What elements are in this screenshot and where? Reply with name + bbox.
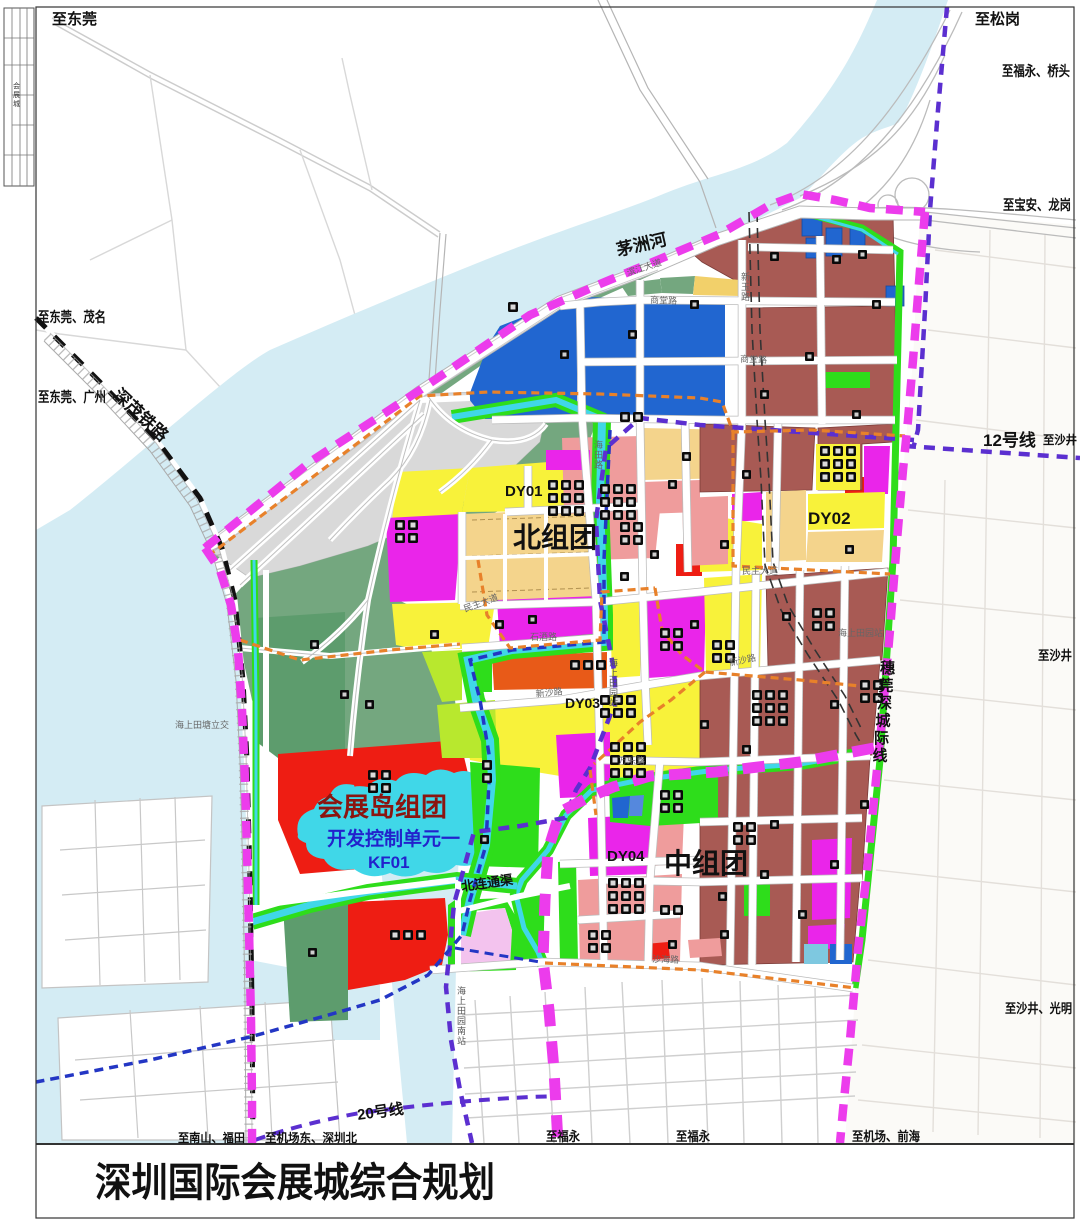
svg-text:至东莞、广州: 至东莞、广州 <box>38 389 106 405</box>
svg-text:城: 城 <box>876 712 891 730</box>
svg-text:至沙井: 至沙井 <box>1038 648 1072 663</box>
svg-text:DY03: DY03 <box>565 695 600 711</box>
svg-text:北组团: 北组团 <box>513 522 597 553</box>
svg-text:中组团: 中组团 <box>664 848 748 879</box>
svg-text:DY04: DY04 <box>607 848 645 865</box>
svg-text:穗: 穗 <box>880 659 895 677</box>
svg-text:至松岗: 至松岗 <box>975 10 1020 28</box>
svg-text:海上田园站: 海上田园站 <box>838 627 883 638</box>
svg-text:12号线: 12号线 <box>983 430 1036 450</box>
svg-text:至东莞: 至东莞 <box>52 10 97 28</box>
svg-text:站: 站 <box>609 697 618 708</box>
svg-text:DY01: DY01 <box>505 483 543 500</box>
svg-text:至沙井、光明: 至沙井、光明 <box>1005 1001 1072 1016</box>
svg-text:至机场东、深圳北: 至机场东、深圳北 <box>265 1130 357 1145</box>
svg-text:田: 田 <box>594 450 603 460</box>
svg-text:上: 上 <box>609 668 618 678</box>
svg-text:会: 会 <box>13 81 20 90</box>
svg-text:田: 田 <box>609 678 618 688</box>
svg-text:KF01: KF01 <box>368 853 410 872</box>
svg-text:新: 新 <box>741 271 750 282</box>
svg-text:线: 线 <box>873 747 888 765</box>
svg-text:至宝安、龙岗: 至宝安、龙岗 <box>1003 197 1071 213</box>
svg-text:南: 南 <box>457 1025 466 1036</box>
svg-text:莞: 莞 <box>879 677 894 695</box>
svg-text:石酒路: 石酒路 <box>530 631 557 642</box>
svg-text:深圳国际会展城综合规划: 深圳国际会展城综合规划 <box>95 1161 495 1205</box>
svg-text:至东莞、茂名: 至东莞、茂名 <box>38 309 106 325</box>
svg-text:路: 路 <box>594 459 603 470</box>
svg-text:海: 海 <box>457 985 466 996</box>
svg-text:深: 深 <box>877 694 892 712</box>
svg-text:DY02: DY02 <box>808 509 851 528</box>
svg-text:海: 海 <box>594 439 603 450</box>
svg-text:至福永、桥头: 至福永、桥头 <box>1002 63 1070 79</box>
svg-text:站: 站 <box>457 1035 466 1046</box>
svg-text:至南山、福田: 至南山、福田 <box>178 1130 245 1145</box>
svg-text:至福永: 至福永 <box>546 1129 581 1144</box>
svg-text:会展岛组团: 会展岛组团 <box>317 792 447 822</box>
svg-text:田: 田 <box>457 1006 466 1016</box>
svg-text:至机场、前海: 至机场、前海 <box>852 1129 920 1144</box>
svg-text:民主大道: 民主大道 <box>742 565 778 576</box>
svg-text:万乐路: 万乐路 <box>618 755 645 766</box>
svg-text:际: 际 <box>874 730 889 747</box>
svg-text:开发控制单元一: 开发控制单元一 <box>327 827 460 850</box>
svg-text:路: 路 <box>741 291 750 302</box>
svg-text:商堂路: 商堂路 <box>740 353 767 365</box>
svg-text:展: 展 <box>13 91 20 99</box>
svg-text:园: 园 <box>609 688 618 698</box>
svg-text:至福永: 至福永 <box>676 1129 711 1144</box>
svg-text:至沙井: 至沙井 <box>1043 432 1077 447</box>
svg-text:沙海路: 沙海路 <box>652 953 679 965</box>
svg-text:海: 海 <box>609 657 618 668</box>
svg-text:玉: 玉 <box>741 282 750 292</box>
svg-text:海上田塘立交: 海上田塘立交 <box>175 719 229 730</box>
svg-text:商堂路: 商堂路 <box>650 294 677 306</box>
svg-text:城: 城 <box>13 100 20 108</box>
svg-text:园: 园 <box>457 1016 466 1026</box>
svg-text:上: 上 <box>457 996 466 1006</box>
